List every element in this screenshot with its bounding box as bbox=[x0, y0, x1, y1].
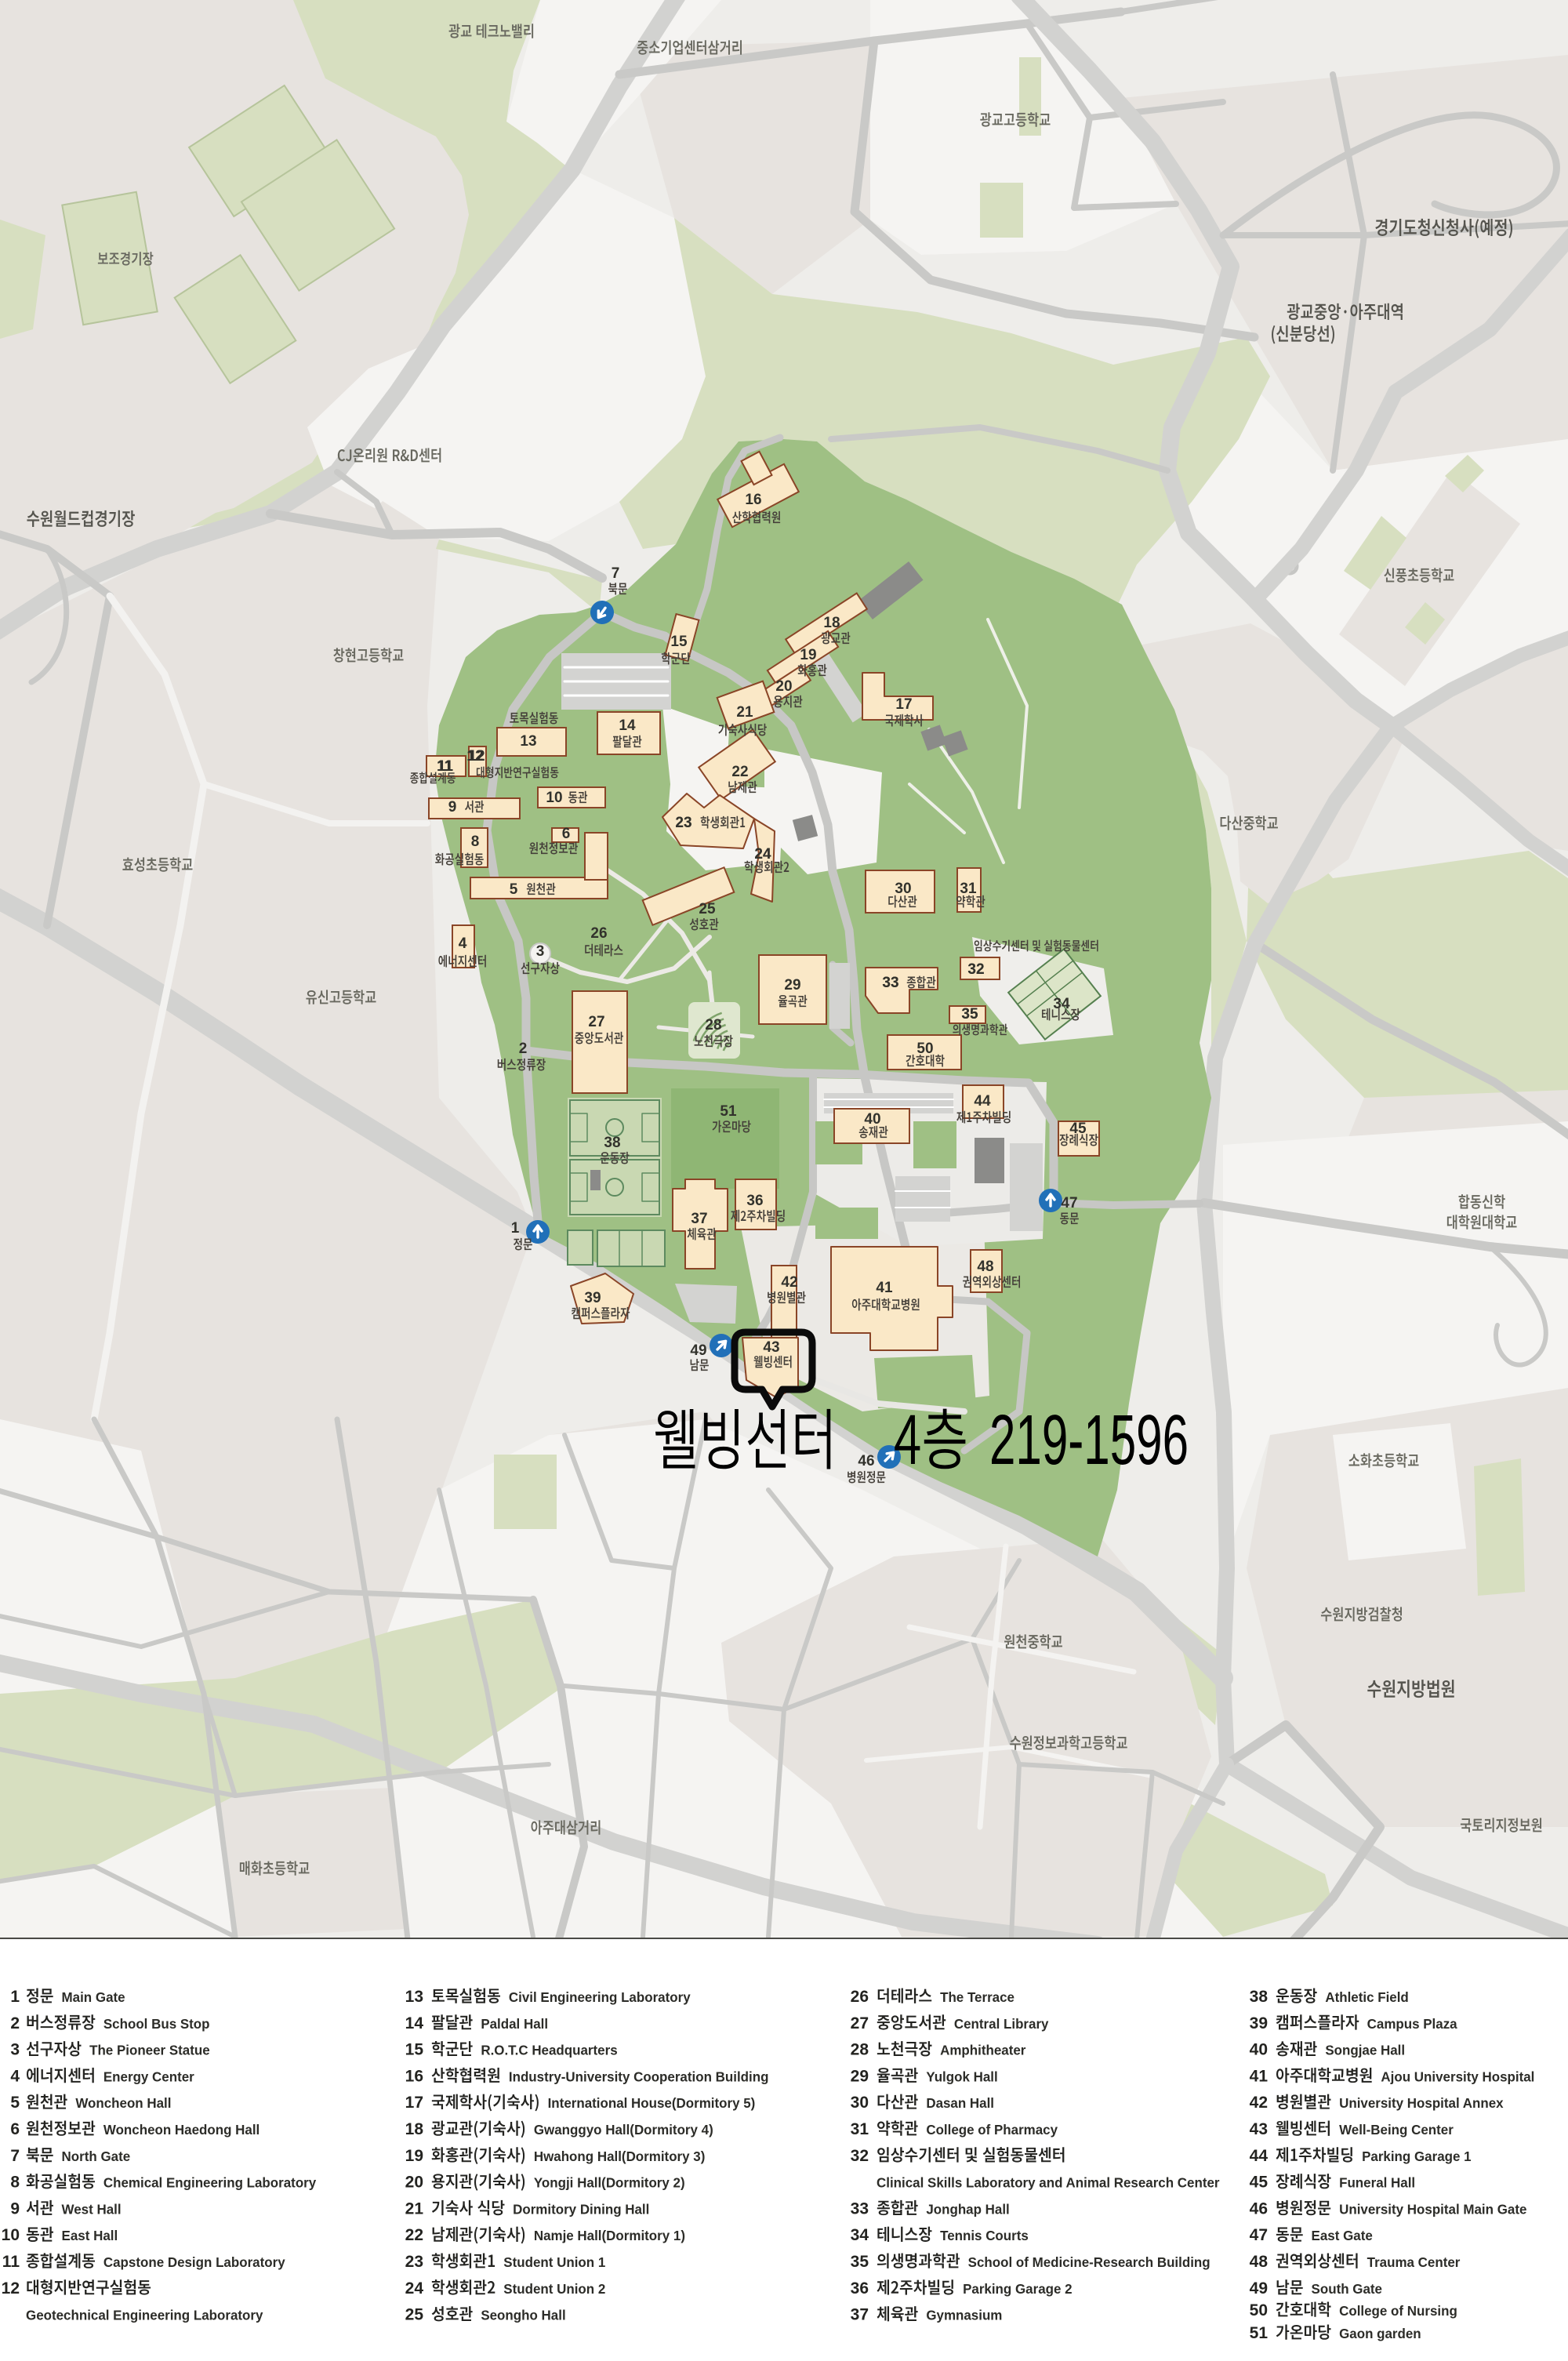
svg-text:12: 12 bbox=[2, 2279, 20, 2297]
svg-text:22: 22 bbox=[405, 2226, 423, 2244]
svg-text:South Gate: South Gate bbox=[1312, 2281, 1382, 2297]
svg-text:10: 10 bbox=[546, 790, 562, 806]
svg-text:42: 42 bbox=[781, 1274, 797, 1291]
svg-text:31: 31 bbox=[851, 2120, 869, 2138]
svg-text:51: 51 bbox=[720, 1103, 737, 1120]
svg-text:14: 14 bbox=[619, 717, 636, 734]
svg-text:9: 9 bbox=[10, 2199, 20, 2218]
svg-text:17: 17 bbox=[895, 696, 912, 713]
svg-text:25: 25 bbox=[699, 901, 716, 917]
svg-text:14: 14 bbox=[405, 2014, 424, 2032]
svg-text:Capstone Design Laboratory: Capstone Design Laboratory bbox=[103, 2254, 285, 2270]
svg-text:5: 5 bbox=[10, 2094, 20, 2112]
svg-text:26: 26 bbox=[590, 925, 607, 942]
svg-text:Woncheon Hall: Woncheon Hall bbox=[75, 2095, 171, 2111]
svg-text:29: 29 bbox=[784, 977, 800, 993]
svg-text:21: 21 bbox=[405, 2199, 424, 2218]
svg-text:28: 28 bbox=[705, 1017, 721, 1033]
svg-text:Hwahong Hall(Dormitory 3): Hwahong Hall(Dormitory 3) bbox=[534, 2149, 706, 2164]
svg-text:East Gate: East Gate bbox=[1312, 2228, 1373, 2243]
svg-text:42: 42 bbox=[1250, 2094, 1268, 2112]
svg-text:Gwanggyo Hall(Dormitory 4): Gwanggyo Hall(Dormitory 4) bbox=[534, 2122, 713, 2138]
svg-text:Clinical Skills Laboratory and: Clinical Skills Laboratory and Animal Re… bbox=[877, 2174, 1220, 2190]
svg-text:37: 37 bbox=[851, 2306, 869, 2324]
svg-text:Amphitheater: Amphitheater bbox=[940, 2042, 1026, 2058]
svg-text:Jonghap Hall: Jonghap Hall bbox=[926, 2201, 1009, 2217]
svg-text:5: 5 bbox=[510, 881, 518, 898]
svg-text:School Bus Stop: School Bus Stop bbox=[103, 2016, 210, 2032]
svg-text:47: 47 bbox=[1250, 2226, 1268, 2244]
svg-text:41: 41 bbox=[876, 1280, 893, 1296]
svg-text:North Gate: North Gate bbox=[62, 2149, 131, 2164]
svg-text:32: 32 bbox=[851, 2147, 869, 2165]
svg-text:46: 46 bbox=[858, 1453, 874, 1469]
svg-text:Industry-University Cooperatio: Industry-University Cooperation Building bbox=[509, 2069, 769, 2084]
svg-text:Energy Center: Energy Center bbox=[103, 2069, 194, 2084]
svg-text:Gaon garden: Gaon garden bbox=[1339, 2326, 1421, 2341]
svg-text:3: 3 bbox=[10, 2041, 20, 2059]
svg-text:30: 30 bbox=[851, 2094, 869, 2112]
svg-text:Student Union 2: Student Union 2 bbox=[503, 2281, 605, 2297]
svg-text:Seongho Hall: Seongho Hall bbox=[481, 2307, 565, 2323]
svg-text:1: 1 bbox=[511, 1220, 520, 1237]
svg-text:28: 28 bbox=[851, 2041, 869, 2059]
svg-text:Geotechnical Engineering Labor: Geotechnical Engineering Laboratory bbox=[26, 2307, 263, 2323]
svg-text:33: 33 bbox=[882, 975, 898, 991]
svg-text:R.O.T.C Headquarters: R.O.T.C Headquarters bbox=[481, 2042, 617, 2058]
svg-text:Yulgok Hall: Yulgok Hall bbox=[926, 2069, 997, 2084]
svg-text:10: 10 bbox=[2, 2226, 20, 2244]
svg-text:West Hall: West Hall bbox=[62, 2201, 122, 2217]
svg-text:13: 13 bbox=[520, 733, 536, 750]
svg-text:35: 35 bbox=[851, 2253, 869, 2271]
svg-text:39: 39 bbox=[584, 1290, 601, 1306]
svg-text:23: 23 bbox=[675, 815, 691, 831]
svg-text:21: 21 bbox=[736, 704, 753, 721]
svg-text:School of Medicine-Research Bu: School of Medicine-Research Building bbox=[968, 2254, 1210, 2270]
svg-text:50: 50 bbox=[916, 1041, 933, 1057]
svg-text:32: 32 bbox=[967, 961, 984, 978]
svg-text:3: 3 bbox=[536, 943, 545, 960]
svg-text:18: 18 bbox=[405, 2120, 424, 2138]
svg-text:International House(Dormitory: International House(Dormitory 5) bbox=[548, 2095, 756, 2111]
svg-text:8: 8 bbox=[471, 834, 480, 850]
svg-text:22: 22 bbox=[731, 764, 748, 780]
svg-text:20: 20 bbox=[775, 678, 792, 695]
svg-text:34: 34 bbox=[1053, 996, 1070, 1012]
svg-text:University Hospital Annex: University Hospital Annex bbox=[1339, 2095, 1504, 2111]
svg-text:50: 50 bbox=[1250, 2301, 1268, 2319]
svg-text:Trauma Center: Trauma Center bbox=[1367, 2254, 1461, 2270]
svg-text:19: 19 bbox=[405, 2147, 423, 2165]
svg-text:49: 49 bbox=[690, 1342, 706, 1359]
svg-text:35: 35 bbox=[961, 1006, 978, 1022]
svg-text:23: 23 bbox=[405, 2253, 423, 2271]
svg-text:16: 16 bbox=[405, 2067, 423, 2085]
svg-text:13: 13 bbox=[405, 1988, 423, 2006]
svg-text:15: 15 bbox=[670, 634, 688, 650]
svg-text:Songjae Hall: Songjae Hall bbox=[1325, 2042, 1405, 2058]
svg-text:Well-Being Center: Well-Being Center bbox=[1339, 2122, 1454, 2138]
svg-text:4: 4 bbox=[459, 935, 467, 952]
svg-text:36: 36 bbox=[746, 1193, 763, 1209]
svg-text:41: 41 bbox=[1250, 2067, 1269, 2085]
svg-text:Dormitory Dining Hall: Dormitory Dining Hall bbox=[513, 2201, 649, 2217]
svg-text:Student Union 1: Student Union 1 bbox=[503, 2254, 605, 2270]
svg-text:Campus Plaza: Campus Plaza bbox=[1367, 2016, 1457, 2032]
svg-text:30: 30 bbox=[895, 881, 911, 897]
svg-text:40: 40 bbox=[864, 1111, 880, 1128]
svg-text:26: 26 bbox=[851, 1988, 869, 2006]
svg-text:45: 45 bbox=[1250, 2174, 1269, 2192]
svg-text:15: 15 bbox=[405, 2041, 424, 2059]
svg-text:49: 49 bbox=[1250, 2279, 1268, 2297]
svg-text:4: 4 bbox=[10, 2067, 20, 2085]
svg-text:44: 44 bbox=[974, 1093, 991, 1110]
svg-text:The Pioneer Statue: The Pioneer Statue bbox=[89, 2042, 210, 2058]
svg-text:Civil Engineering Laboratory: Civil Engineering Laboratory bbox=[509, 1989, 691, 2005]
svg-text:Tennis Courts: Tennis Courts bbox=[940, 2228, 1029, 2243]
svg-text:6: 6 bbox=[562, 826, 571, 842]
svg-text:Parking Garage 1: Parking Garage 1 bbox=[1362, 2149, 1472, 2164]
svg-text:31: 31 bbox=[960, 881, 977, 897]
svg-text:Central Library: Central Library bbox=[954, 2016, 1049, 2032]
svg-text:48: 48 bbox=[1250, 2253, 1269, 2271]
svg-text:Ajou University Hospital: Ajou University Hospital bbox=[1381, 2069, 1534, 2084]
svg-text:Funeral Hall: Funeral Hall bbox=[1339, 2174, 1415, 2190]
svg-text:24: 24 bbox=[754, 846, 771, 863]
svg-text:East Hall: East Hall bbox=[62, 2228, 118, 2243]
svg-text:2: 2 bbox=[519, 1041, 528, 1057]
svg-text:2: 2 bbox=[10, 2014, 20, 2032]
svg-text:Athletic Field: Athletic Field bbox=[1325, 1989, 1408, 2005]
svg-text:38: 38 bbox=[604, 1135, 620, 1151]
svg-text:34: 34 bbox=[851, 2226, 869, 2244]
svg-text:Paldal Hall: Paldal Hall bbox=[481, 2016, 548, 2032]
svg-text:43: 43 bbox=[763, 1339, 779, 1356]
svg-text:48: 48 bbox=[977, 1259, 993, 1275]
svg-text:27: 27 bbox=[588, 1014, 604, 1030]
svg-text:7: 7 bbox=[10, 2147, 20, 2165]
svg-text:45: 45 bbox=[1069, 1121, 1087, 1137]
svg-text:18: 18 bbox=[823, 615, 840, 631]
svg-text:College of Pharmacy: College of Pharmacy bbox=[926, 2122, 1058, 2138]
svg-text:19: 19 bbox=[800, 647, 816, 663]
svg-text:33: 33 bbox=[851, 2199, 869, 2218]
svg-text:8: 8 bbox=[10, 2174, 20, 2192]
svg-text:11: 11 bbox=[2, 2253, 20, 2271]
svg-text:40: 40 bbox=[1250, 2041, 1268, 2059]
svg-text:38: 38 bbox=[1250, 1988, 1269, 2006]
svg-text:47: 47 bbox=[1061, 1195, 1077, 1211]
svg-text:37: 37 bbox=[691, 1211, 707, 1227]
svg-text:36: 36 bbox=[851, 2279, 869, 2297]
svg-text:20: 20 bbox=[405, 2174, 423, 2192]
svg-text:219-1596: 219-1596 bbox=[989, 1401, 1189, 1480]
svg-text:Gymnasium: Gymnasium bbox=[926, 2307, 1002, 2323]
svg-text:9: 9 bbox=[448, 799, 457, 815]
svg-text:College of Nursing: College of Nursing bbox=[1339, 2303, 1457, 2319]
svg-text:Namje Hall(Dormitory 1): Namje Hall(Dormitory 1) bbox=[534, 2228, 685, 2243]
svg-text:17: 17 bbox=[405, 2094, 423, 2112]
svg-text:39: 39 bbox=[1250, 2014, 1268, 2032]
svg-text:25: 25 bbox=[405, 2306, 424, 2324]
svg-text:Dasan Hall: Dasan Hall bbox=[926, 2095, 994, 2111]
svg-text:46: 46 bbox=[1250, 2199, 1268, 2218]
svg-text:Parking Garage 2: Parking Garage 2 bbox=[963, 2281, 1072, 2297]
svg-text:Main Gate: Main Gate bbox=[62, 1989, 125, 2005]
svg-text:University Hospital Main Gate: University Hospital Main Gate bbox=[1339, 2201, 1526, 2217]
svg-text:24: 24 bbox=[405, 2279, 424, 2297]
svg-text:Chemical Engineering Laborator: Chemical Engineering Laboratory bbox=[103, 2174, 317, 2190]
svg-text:29: 29 bbox=[851, 2067, 869, 2085]
svg-text:16: 16 bbox=[745, 492, 761, 508]
svg-text:6: 6 bbox=[10, 2120, 20, 2138]
svg-text:51: 51 bbox=[1250, 2324, 1269, 2342]
svg-text:7: 7 bbox=[612, 565, 620, 582]
svg-text:The Terrace: The Terrace bbox=[940, 1989, 1014, 2005]
svg-text:43: 43 bbox=[1250, 2120, 1268, 2138]
svg-text:1: 1 bbox=[10, 1988, 20, 2006]
svg-text:27: 27 bbox=[851, 2014, 869, 2032]
svg-text:12: 12 bbox=[468, 748, 485, 765]
svg-text:Woncheon Haedong Hall: Woncheon Haedong Hall bbox=[103, 2122, 260, 2138]
svg-text:Yongji Hall(Dormitory 2): Yongji Hall(Dormitory 2) bbox=[534, 2174, 685, 2190]
svg-text:44: 44 bbox=[1250, 2147, 1269, 2165]
